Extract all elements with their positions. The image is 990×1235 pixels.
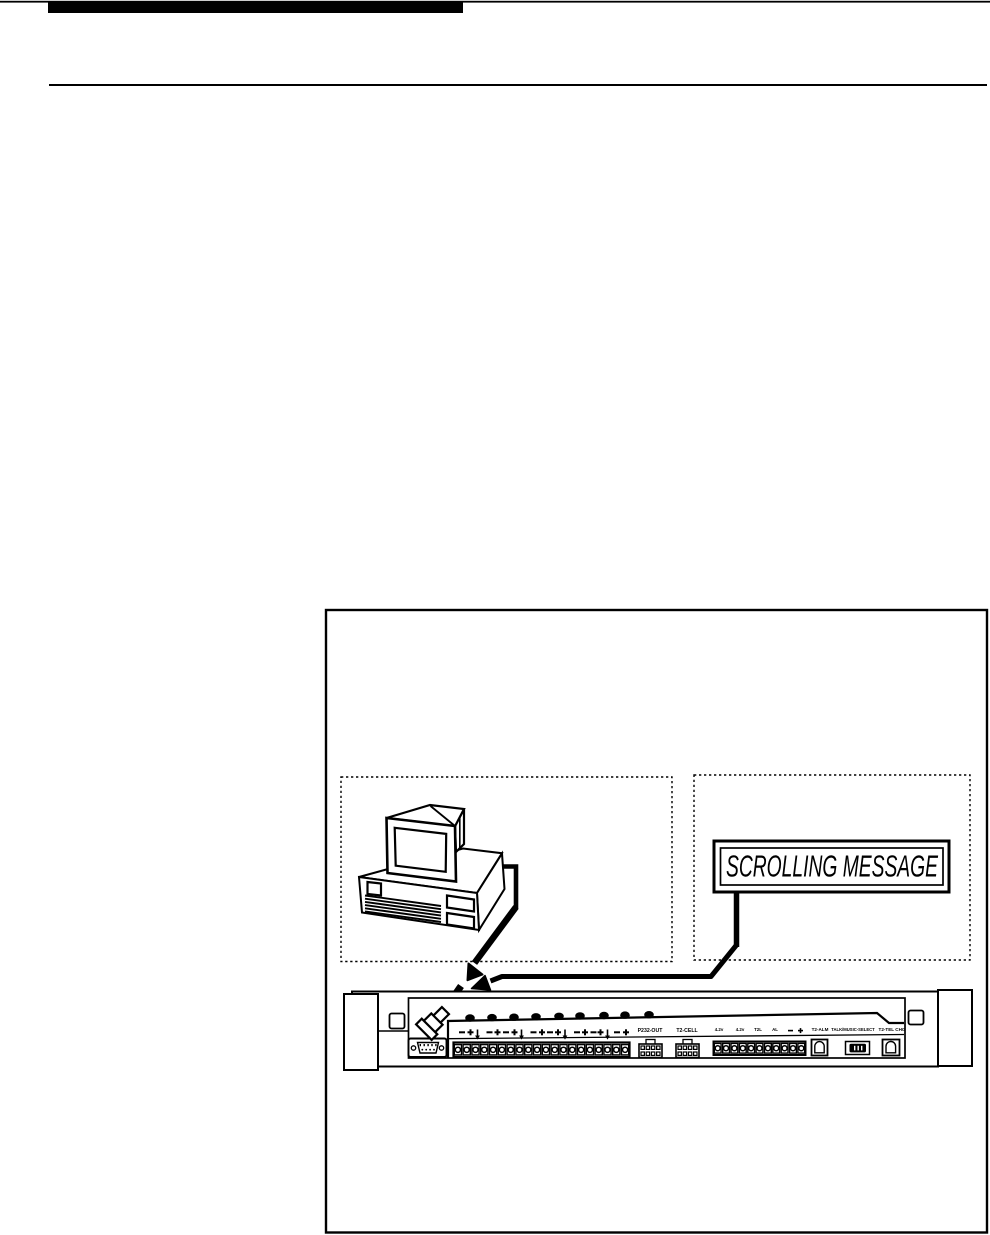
svg-text:T2-CELL: T2-CELL — [676, 1028, 698, 1034]
svg-text:P232-OUT: P232-OUT — [638, 1028, 664, 1034]
svg-text:TALK/MUSIC-SELECT: TALK/MUSIC-SELECT — [831, 1027, 875, 1032]
svg-text:4.2v: 4.2v — [715, 1027, 724, 1032]
svg-text:T2L: T2L — [754, 1027, 762, 1032]
svg-text:T2-TEL CHG: T2-TEL CHG — [879, 1027, 906, 1032]
svg-text:AL: AL — [772, 1027, 778, 1032]
svg-text:4.2v: 4.2v — [736, 1027, 745, 1032]
svg-text:T2-ALM: T2-ALM — [812, 1027, 829, 1032]
svg-text:SCROLLING MESSAGE: SCROLLING MESSAGE — [726, 850, 938, 884]
